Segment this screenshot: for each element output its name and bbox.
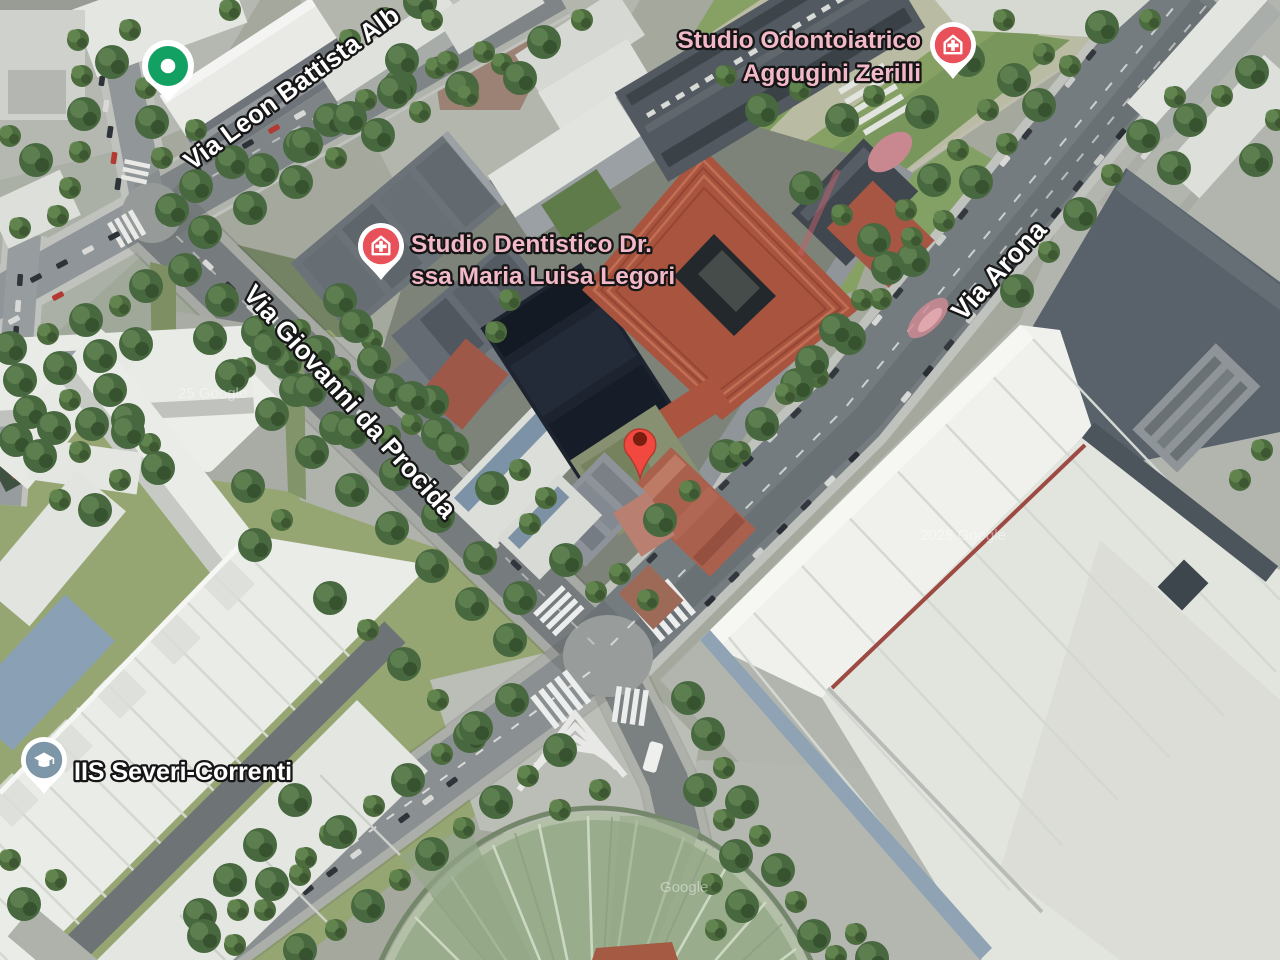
svg-text:Google: Google <box>660 879 708 896</box>
svg-text:ssa Maria Luisa Legori: ssa Maria Luisa Legori <box>411 263 675 290</box>
svg-text:Aggugini Zerilli: Aggugini Zerilli <box>743 60 921 87</box>
svg-text:25 Google: 25 Google <box>178 385 247 402</box>
svg-text:IIS Severi-Correnti: IIS Severi-Correnti <box>74 758 292 786</box>
svg-text:Studio Dentistico Dr.: Studio Dentistico Dr. <box>411 231 652 258</box>
svg-text:Studio Odontoiatrico: Studio Odontoiatrico <box>677 27 921 54</box>
svg-text:2025 Google: 2025 Google <box>920 527 1006 544</box>
